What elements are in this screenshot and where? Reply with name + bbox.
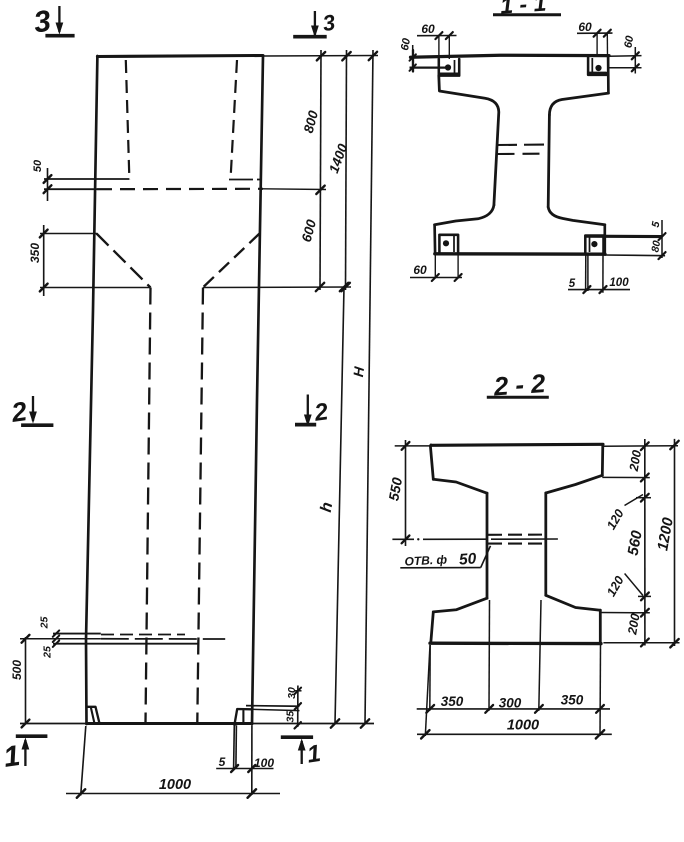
svg-text:5: 5	[219, 755, 226, 769]
svg-text:1200: 1200	[654, 516, 677, 552]
svg-text:350: 350	[28, 243, 42, 263]
svg-text:50: 50	[458, 550, 477, 568]
svg-text:5: 5	[569, 278, 576, 290]
svg-text:30: 30	[286, 687, 298, 699]
svg-text:60: 60	[399, 37, 413, 52]
svg-text:60: 60	[413, 263, 427, 277]
svg-text:1: 1	[305, 740, 322, 769]
svg-text:60: 60	[578, 20, 592, 34]
svg-text:25: 25	[38, 617, 50, 630]
svg-text:5: 5	[650, 220, 663, 228]
svg-text:1000: 1000	[159, 777, 191, 793]
svg-text:1000: 1000	[507, 718, 539, 734]
svg-text:60: 60	[421, 22, 435, 36]
svg-text:120: 120	[604, 574, 627, 599]
svg-text:35: 35	[285, 711, 297, 723]
svg-text:H: H	[350, 365, 367, 378]
svg-text:200: 200	[627, 449, 645, 473]
svg-text:60: 60	[622, 34, 636, 49]
svg-text:800: 800	[301, 109, 321, 135]
svg-text:1: 1	[2, 740, 22, 774]
svg-text:2: 2	[312, 398, 331, 427]
svg-text:25: 25	[42, 646, 54, 659]
svg-text:120: 120	[604, 507, 627, 532]
svg-text:550: 550	[385, 476, 405, 502]
svg-text:2: 2	[9, 396, 29, 428]
svg-text:350: 350	[561, 693, 584, 708]
svg-text:80: 80	[649, 240, 663, 254]
svg-text:50: 50	[32, 159, 44, 172]
svg-text:1400: 1400	[326, 141, 351, 175]
svg-text:600: 600	[299, 218, 319, 244]
svg-text:h: h	[318, 501, 336, 514]
svg-text:100: 100	[254, 756, 274, 770]
svg-text:300: 300	[499, 696, 522, 711]
svg-text:350: 350	[441, 694, 464, 709]
svg-text:500: 500	[10, 660, 24, 680]
svg-text:560: 560	[625, 529, 646, 557]
svg-text:100: 100	[609, 277, 629, 289]
svg-text:ОТВ. ф: ОТВ. ф	[404, 552, 448, 568]
svg-text:200: 200	[625, 612, 643, 636]
svg-text:3: 3	[321, 10, 337, 36]
